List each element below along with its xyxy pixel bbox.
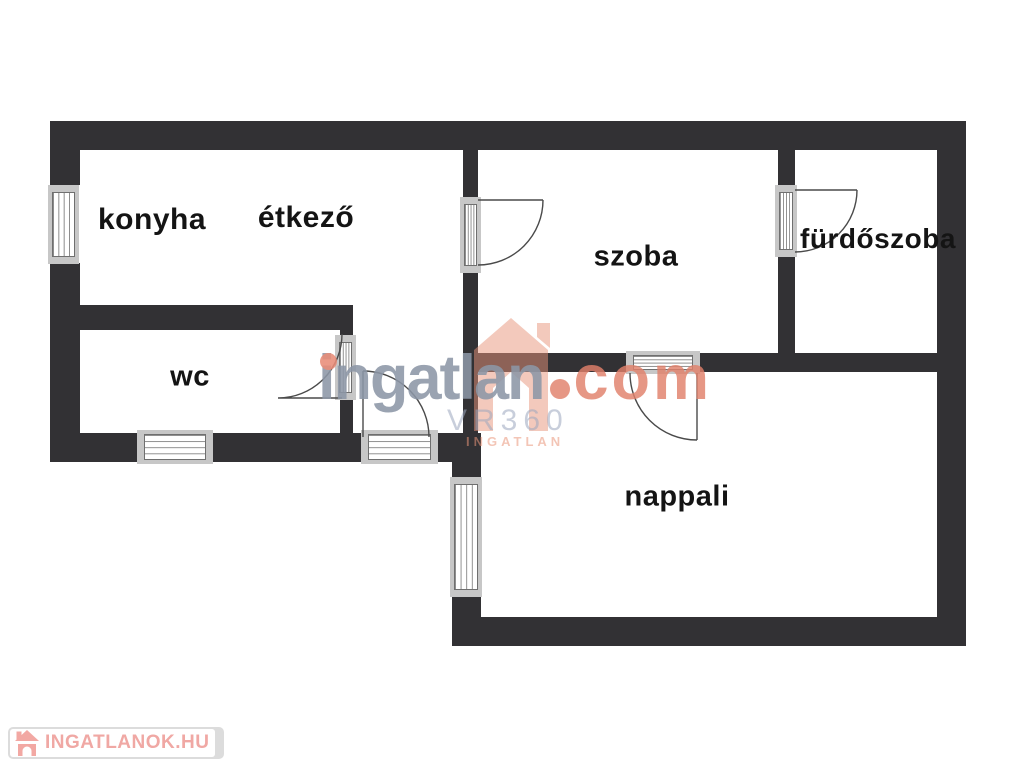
room-label-szoba: szoba: [594, 241, 679, 274]
room-label-etkezo: étkező: [258, 201, 354, 235]
window-symbol-nappali-left: [450, 477, 482, 597]
room-label-konyha: konyha: [98, 203, 206, 237]
room-label-nappali: nappali: [624, 481, 729, 514]
entrance-door-frame: [361, 430, 438, 464]
bathroom-door-frame: [775, 185, 797, 257]
wall-szoba-nappali: [478, 353, 966, 372]
door-panel: [779, 192, 793, 250]
room-label-wc: wc: [170, 361, 210, 394]
wall-top: [50, 121, 966, 150]
wall-right: [937, 121, 966, 646]
szoba-door-frame: [460, 197, 481, 273]
wall-left-upper: [50, 121, 80, 185]
footer-logo-inner: INGATLANOK.HU: [10, 729, 215, 757]
door-swing-entrance: [363, 371, 429, 437]
window-symbol-left-wall: [48, 185, 79, 264]
wall-bathroom-left: [778, 150, 795, 372]
door-panel: [464, 204, 477, 266]
watermark-brand-dot: [550, 379, 570, 399]
floor-plan: ingatlancom VR360 INGATLAN konyha étkező…: [0, 0, 1024, 768]
door-swing-nappali: [630, 373, 697, 440]
watermark-house-icon: [0, 0, 1024, 768]
door-panel: [633, 355, 693, 370]
window-symbol-wc-bottom: [137, 430, 213, 464]
house-icon: [15, 730, 39, 756]
door-swing-szoba: [478, 200, 543, 265]
window-glass: [52, 192, 75, 257]
wall-divider-vertical: [463, 150, 478, 433]
window-glass: [144, 434, 206, 460]
door-panel: [368, 434, 431, 460]
footer-logo-text: INGATLANOK.HU: [45, 732, 209, 754]
footer-logo: INGATLANOK.HU: [8, 727, 224, 759]
wall-bottom: [452, 617, 966, 646]
wc-door-frame: [335, 335, 356, 400]
door-swings-layer: [0, 0, 1024, 768]
nappali-door-frame: [626, 351, 700, 374]
door-panel: [339, 342, 352, 393]
room-label-furdoszoba: fürdőszoba: [800, 223, 956, 255]
window-glass: [454, 484, 478, 590]
wall-wc-top: [80, 305, 353, 330]
door-swing-wc: [278, 334, 342, 398]
